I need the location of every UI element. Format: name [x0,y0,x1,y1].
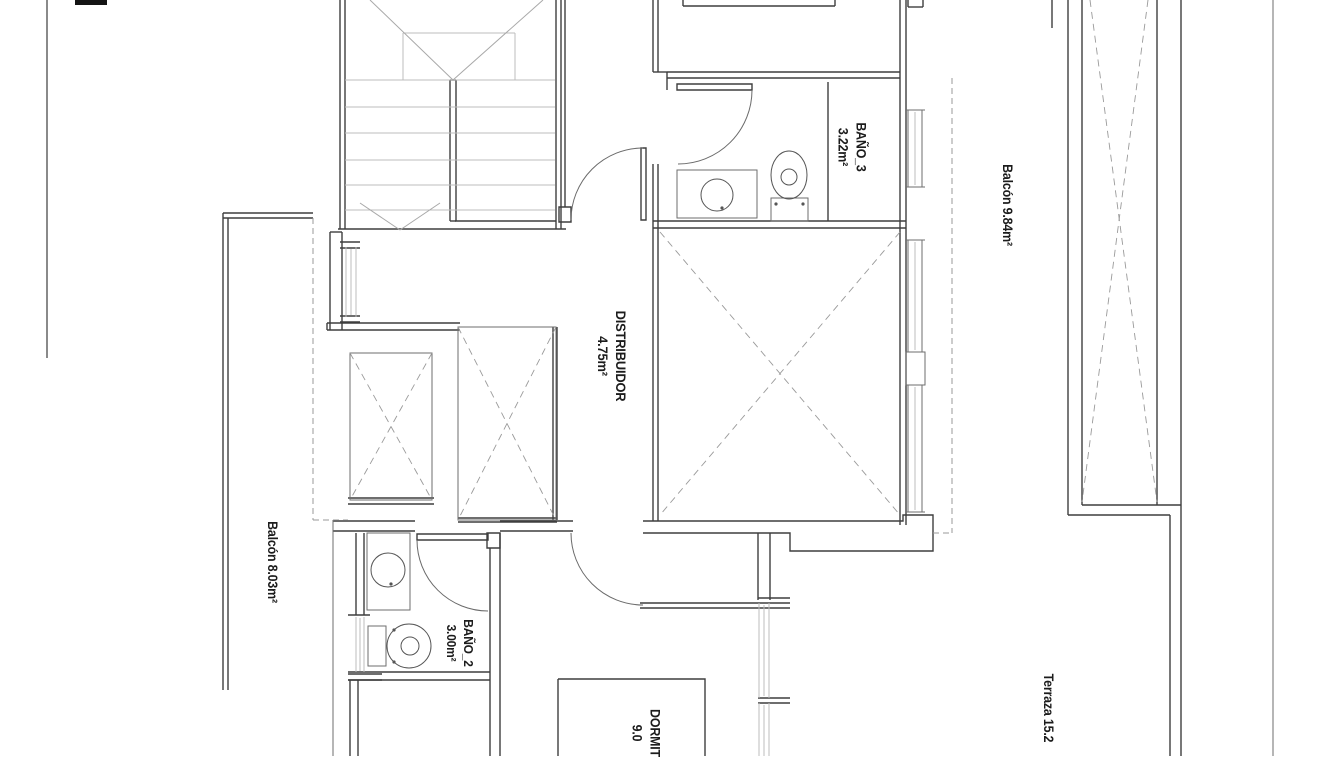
walls-medium [333,0,1273,756]
floorplan-drawing [0,0,1319,756]
stair-diagonals [360,0,543,230]
overhang-dashed [313,78,952,533]
walls-dark [223,0,1181,756]
solid-black-marker [75,0,107,5]
floorplan-canvas: BAÑO_3 3.22m²DISTRIBUIDOR 4.75m²Balcón 9… [0,0,1319,756]
